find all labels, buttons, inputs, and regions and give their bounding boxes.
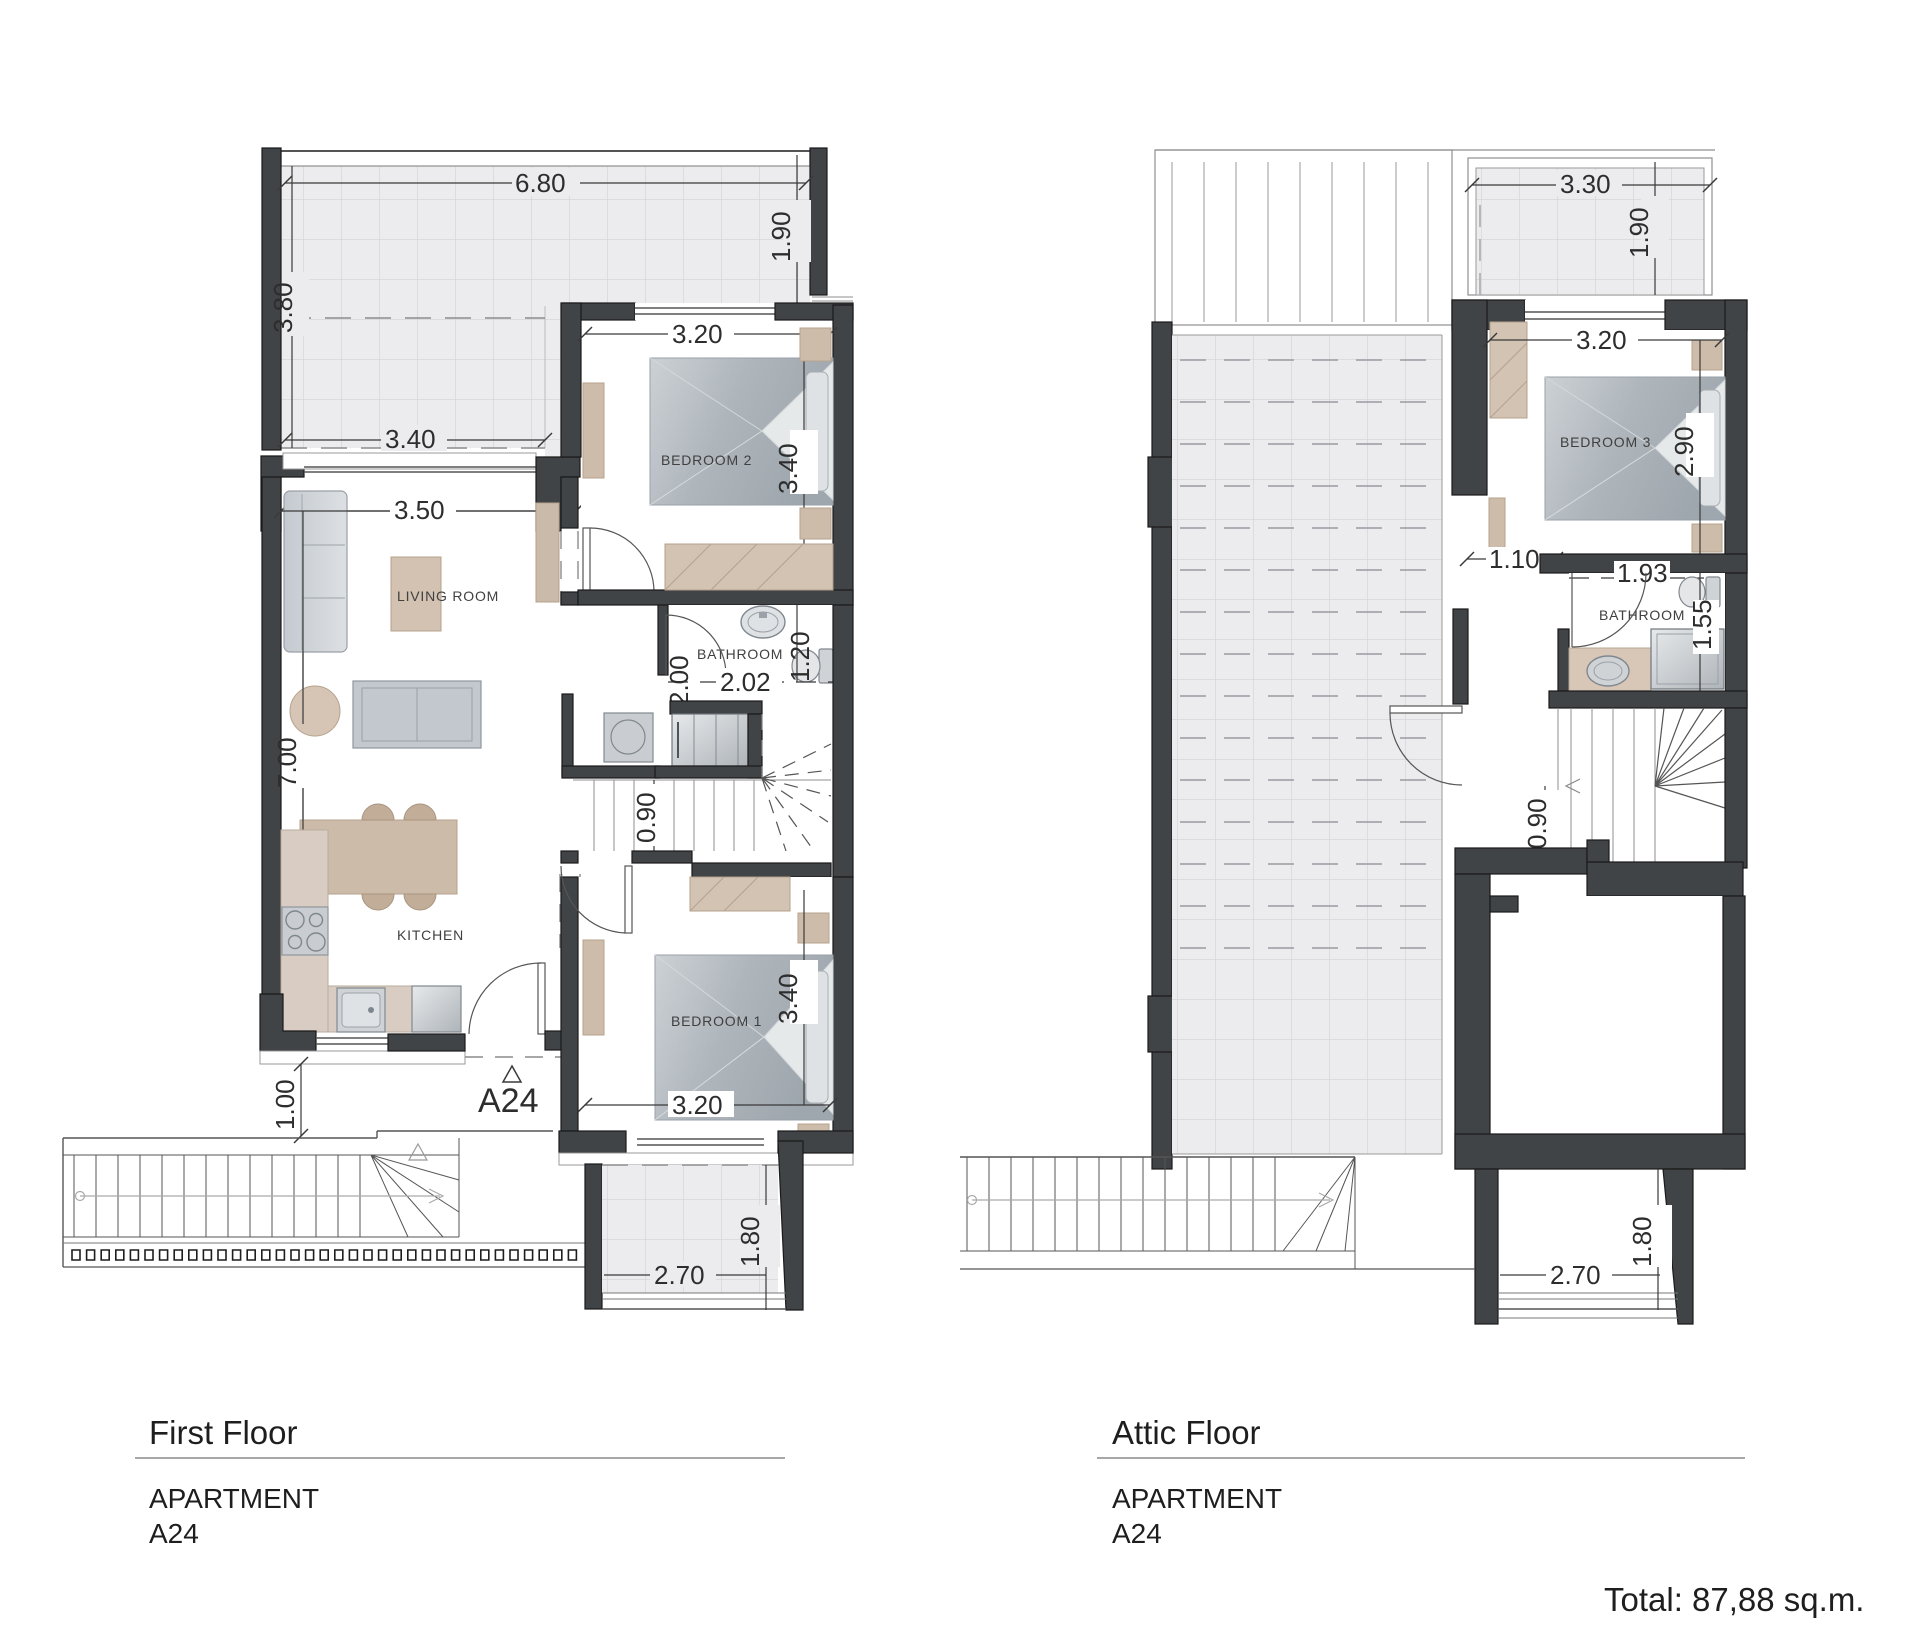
svg-text:2.02: 2.02 [720,667,771,697]
svg-text:1.90: 1.90 [766,211,796,262]
svg-text:BATHROOM: BATHROOM [697,646,783,662]
svg-text:A24: A24 [1112,1518,1162,1549]
svg-text:BEDROOM 3: BEDROOM 3 [1560,434,1651,450]
svg-text:0.90: 0.90 [1522,798,1552,849]
svg-text:0.90: 0.90 [631,792,661,843]
svg-text:LIVING ROOM: LIVING ROOM [397,588,499,604]
svg-text:First Floor: First Floor [149,1414,298,1451]
svg-text:1.93: 1.93 [1617,558,1668,588]
svg-text:3.40: 3.40 [385,424,436,454]
svg-text:1.20: 1.20 [785,631,815,682]
svg-text:1.80: 1.80 [735,1216,765,1267]
svg-text:3.50: 3.50 [394,495,445,525]
svg-text:2.90: 2.90 [1669,426,1699,477]
svg-text:Attic Floor: Attic Floor [1112,1414,1261,1451]
svg-text:7.00: 7.00 [272,737,302,788]
svg-text:BEDROOM 2: BEDROOM 2 [661,452,752,468]
svg-text:1.10: 1.10 [1489,544,1540,574]
svg-text:APARTMENT: APARTMENT [149,1483,319,1514]
svg-text:1.00: 1.00 [270,1079,300,1130]
svg-text:2.70: 2.70 [1550,1260,1601,1290]
svg-text:BATHROOM: BATHROOM [1599,607,1685,623]
svg-text:3.20: 3.20 [672,319,723,349]
svg-text:2.70: 2.70 [654,1260,705,1290]
svg-text:Total: 87,88 sq.m.: Total: 87,88 sq.m. [1604,1581,1864,1618]
svg-text:A24: A24 [149,1518,199,1549]
svg-text:3.20: 3.20 [1576,325,1627,355]
svg-text:3.80: 3.80 [268,282,298,333]
svg-text:3.40: 3.40 [773,973,803,1024]
svg-text:3.40: 3.40 [773,443,803,494]
svg-text:KITCHEN: KITCHEN [397,927,464,943]
svg-text:1.55: 1.55 [1687,599,1717,650]
svg-text:6.80: 6.80 [515,168,566,198]
svg-text:1.90: 1.90 [1624,207,1654,258]
svg-text:BEDROOM 1: BEDROOM 1 [671,1013,762,1029]
svg-text:A24: A24 [478,1082,539,1120]
svg-text:APARTMENT: APARTMENT [1112,1483,1282,1514]
svg-text:3.20: 3.20 [672,1090,723,1120]
svg-text:2.00: 2.00 [664,655,694,706]
svg-text:1.80: 1.80 [1627,1216,1657,1267]
svg-text:3.30: 3.30 [1560,169,1611,199]
